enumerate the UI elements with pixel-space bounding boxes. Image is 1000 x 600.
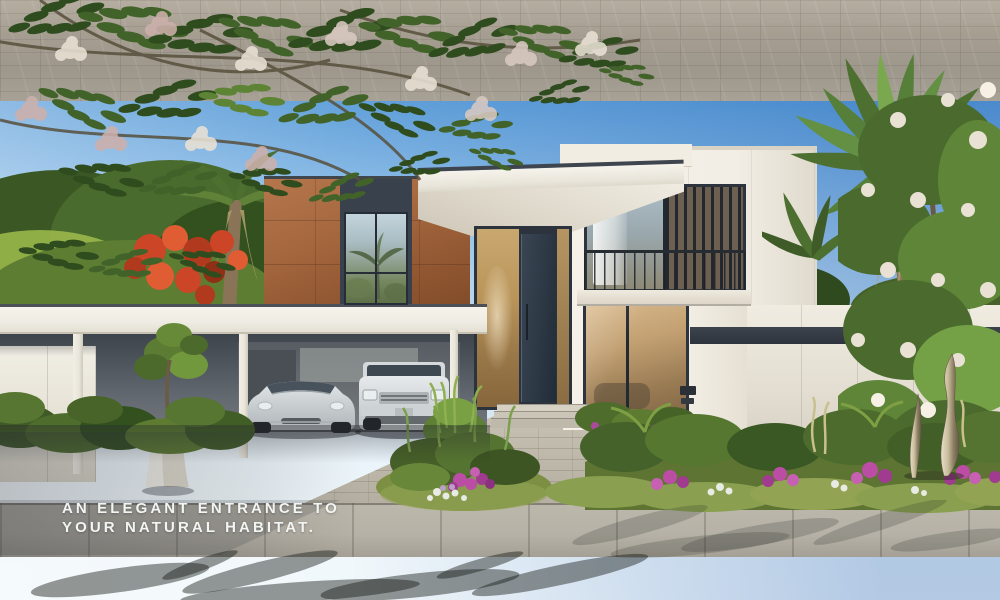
garden-island (376, 398, 552, 511)
caption: AN ELEGANT ENTRANCE TO YOUR NATURAL HABI… (62, 499, 340, 537)
garden-sculpture (886, 346, 970, 480)
caption-line-1: AN ELEGANT ENTRANCE TO (62, 499, 340, 518)
overhanging-tree (0, 0, 680, 360)
villa-render-scene: AN ELEGANT ENTRANCE TO YOUR NATURAL HABI… (0, 0, 1000, 600)
road (0, 551, 1000, 600)
caption-line-2: YOUR NATURAL HABITAT. (62, 518, 340, 537)
